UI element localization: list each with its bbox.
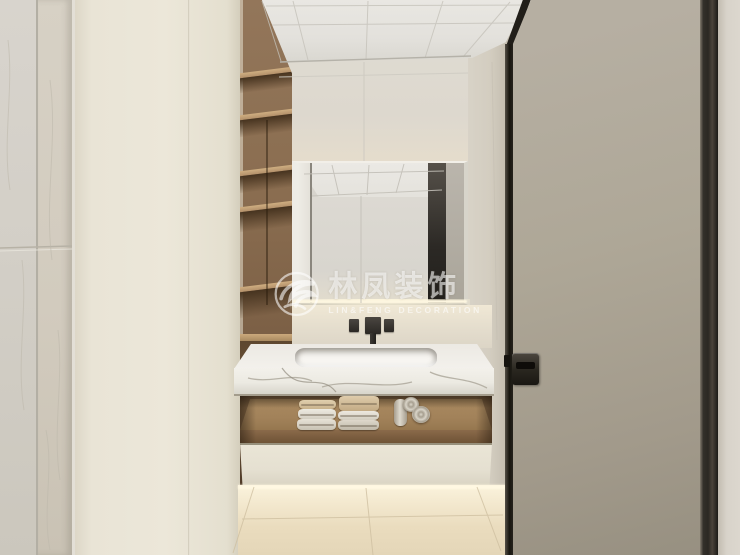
folded-towel: [299, 400, 336, 409]
storage-cabinet: [75, 0, 240, 555]
door-leading-edge: [505, 44, 513, 555]
countertop-front-face: [234, 368, 494, 396]
left-marble-tile-1: [0, 0, 38, 555]
folded-towel: [338, 420, 379, 430]
marble-floor: [238, 485, 508, 555]
sink-basin: [295, 348, 437, 367]
handle-slot: [516, 362, 535, 369]
linfeng-logo-icon: [272, 268, 321, 320]
door-handle[interactable]: [512, 353, 539, 385]
door-frame: [700, 0, 718, 555]
folded-towel: [298, 409, 336, 419]
right-marble-strip: [718, 0, 740, 555]
watermark: 林凤装饰 LIN&FENG DECORATION: [272, 266, 482, 322]
folded-towel: [297, 419, 336, 430]
door-panel[interactable]: [513, 0, 700, 555]
under-cabinet-glow: [238, 485, 508, 489]
rolled-towel: [412, 406, 430, 423]
shelf-divider: [266, 120, 268, 305]
niche-shadow-right: [476, 396, 492, 443]
left-marble-tile-2: [38, 0, 75, 555]
niche-shadow-left: [240, 396, 256, 443]
watermark-brand-cn: 林凤装饰: [328, 273, 460, 302]
cabinet-door-seam: [188, 0, 190, 555]
folded-towel: [338, 411, 379, 420]
folded-towel: [339, 396, 379, 411]
vanity-drawer: [240, 443, 492, 486]
shelf-ledge: [240, 334, 292, 341]
niche-wood-front: [240, 430, 492, 443]
bathroom-render: 林凤装饰 LIN&FENG DECORATION: [0, 0, 740, 555]
door-latch: [504, 355, 510, 367]
watermark-brand-en: LIN&FENG DECORATION: [328, 305, 482, 315]
